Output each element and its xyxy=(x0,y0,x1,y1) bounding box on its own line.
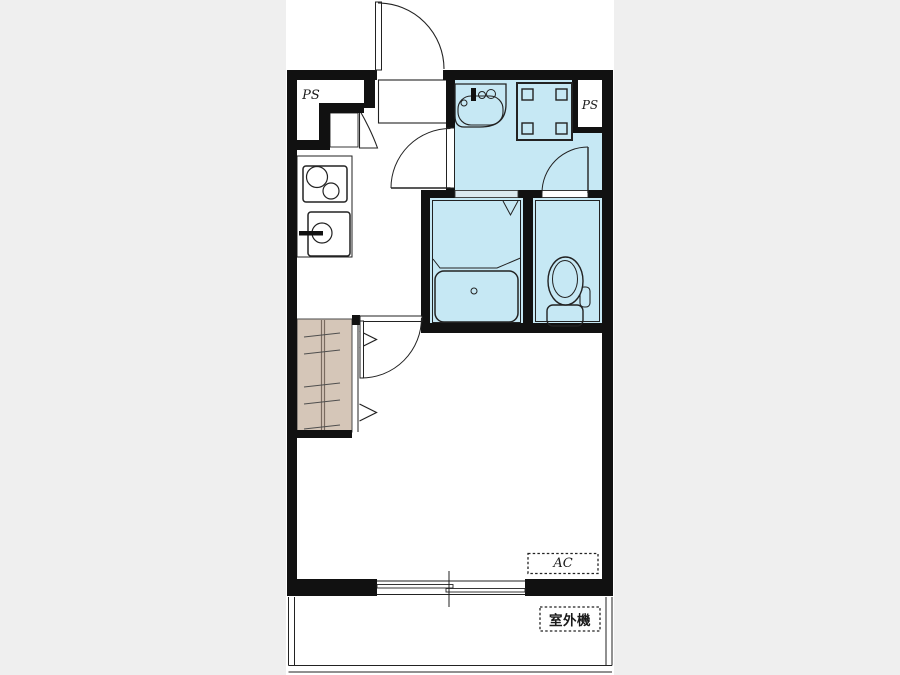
bathroom-floor xyxy=(430,198,523,323)
room-door-threshold xyxy=(360,316,422,322)
wall-room-door-stub xyxy=(352,315,360,325)
wall-entrance-stub xyxy=(364,80,375,108)
wall-bath-top xyxy=(518,190,542,198)
sink-faucet xyxy=(299,231,323,236)
wall-top-right xyxy=(443,70,613,80)
ac-label: AC xyxy=(528,554,598,573)
window-sash xyxy=(377,585,453,589)
utility-nook xyxy=(330,110,378,148)
wall-bottom-right xyxy=(525,579,613,596)
closet xyxy=(297,319,377,432)
outdoor-unit-label: 室外機 xyxy=(540,607,600,631)
washroom-door-threshold xyxy=(447,128,455,188)
wall-bath-bottom xyxy=(421,323,602,333)
kitchen xyxy=(297,156,352,257)
wall-top-left xyxy=(287,70,377,80)
ps-label-left: PS xyxy=(298,86,324,104)
window xyxy=(377,571,525,607)
wall-bath-top xyxy=(588,190,602,198)
window-sash xyxy=(446,589,525,593)
entrance-door-leaf xyxy=(376,2,382,70)
wall-closet-bottom xyxy=(297,430,352,438)
ps-label-right: PS xyxy=(577,96,603,114)
utility-box xyxy=(330,113,358,147)
bath-sliding-door xyxy=(455,191,518,198)
wall-ps-right xyxy=(572,127,602,133)
washbasin-faucet xyxy=(471,88,476,101)
toilet-door-threshold xyxy=(542,191,588,198)
wall-bath-left xyxy=(421,190,430,333)
wall-bath-toilet xyxy=(523,198,533,323)
washroom-door-arc xyxy=(391,129,451,189)
room-door-leaf xyxy=(360,321,364,378)
wall-ps-nook xyxy=(287,140,319,150)
wall-hall-washroom-upper xyxy=(446,80,455,128)
closet-door-chevron xyxy=(360,404,377,421)
nook-door xyxy=(360,110,378,148)
entrance-door-arc xyxy=(378,3,444,69)
room-door-arc xyxy=(362,318,422,378)
wall-right xyxy=(602,70,613,596)
wall-bottom-left xyxy=(287,579,377,596)
entrance-step xyxy=(379,80,448,123)
floorplan-drawing xyxy=(0,0,900,675)
wall-ps-nook xyxy=(319,103,330,150)
